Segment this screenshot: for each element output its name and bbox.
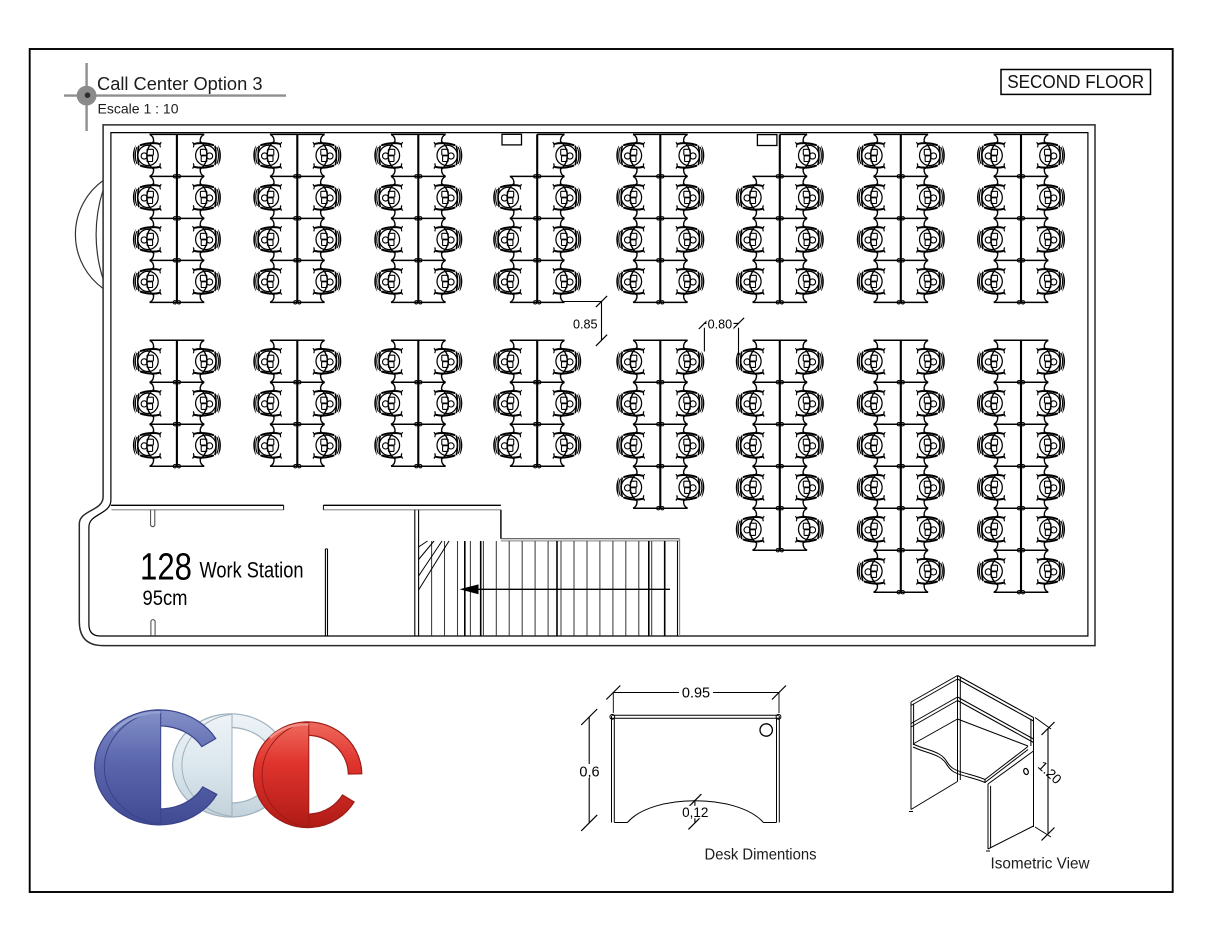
svg-text:Isometric View: Isometric View bbox=[991, 856, 1090, 873]
svg-text:Escale 1 : 10: Escale 1 : 10 bbox=[98, 102, 179, 117]
svg-text:0,12: 0,12 bbox=[682, 805, 708, 820]
svg-text:95cm: 95cm bbox=[143, 586, 188, 610]
svg-text:0.85: 0.85 bbox=[573, 317, 598, 331]
svg-text:SECOND FLOOR: SECOND FLOOR bbox=[1007, 71, 1144, 92]
svg-text:Call Center Option 3: Call Center Option 3 bbox=[97, 74, 263, 94]
svg-text:0.80: 0.80 bbox=[708, 317, 733, 331]
svg-text:0,6: 0,6 bbox=[579, 765, 599, 781]
svg-text:0.95: 0.95 bbox=[682, 685, 710, 701]
svg-text:128: 128 bbox=[140, 547, 192, 589]
svg-text:Work Station: Work Station bbox=[200, 558, 304, 583]
svg-text:Desk Dimentions: Desk Dimentions bbox=[705, 847, 817, 864]
